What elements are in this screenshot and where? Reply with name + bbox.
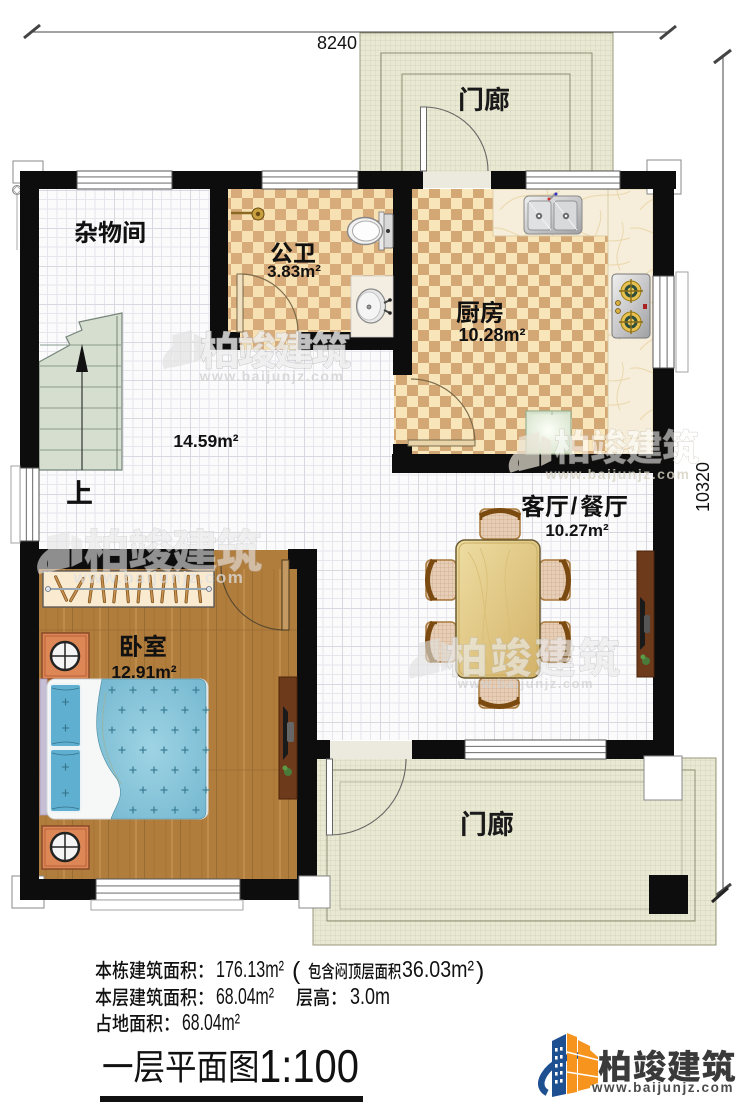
svg-text:3.83m²: 3.83m²: [267, 262, 321, 281]
svg-text:1:100: 1:100: [259, 1040, 359, 1092]
svg-text:176.13m²: 176.13m²: [216, 956, 284, 982]
svg-text:14.59m²: 14.59m²: [173, 431, 238, 451]
svg-text:www.baijunjz.com: www.baijunjz.com: [591, 1080, 734, 1095]
svg-text:/: /: [571, 493, 578, 520]
svg-text:68.04m²: 68.04m²: [216, 983, 274, 1009]
svg-text:10.27m²: 10.27m²: [545, 521, 609, 540]
svg-text:36.03m²: 36.03m²: [402, 956, 474, 982]
svg-text:8240: 8240: [317, 33, 357, 53]
svg-text:www.baijunjz.com: www.baijunjz.com: [199, 368, 345, 384]
svg-text:(: (: [292, 957, 301, 985]
svg-text:68.04m²: 68.04m²: [182, 1009, 240, 1035]
svg-text:10.28m²: 10.28m²: [458, 325, 525, 345]
svg-text:3.0m: 3.0m: [350, 983, 390, 1009]
svg-text:www.baijunjz.com: www.baijunjz.com: [457, 676, 594, 691]
svg-text:www.baijunjz.com: www.baijunjz.com: [545, 466, 691, 482]
svg-text:10320: 10320: [693, 462, 713, 512]
svg-text:www.baijunjz.com: www.baijunjz.com: [73, 568, 245, 587]
svg-text:): ): [476, 957, 484, 985]
svg-text:12.91m²: 12.91m²: [111, 662, 176, 682]
